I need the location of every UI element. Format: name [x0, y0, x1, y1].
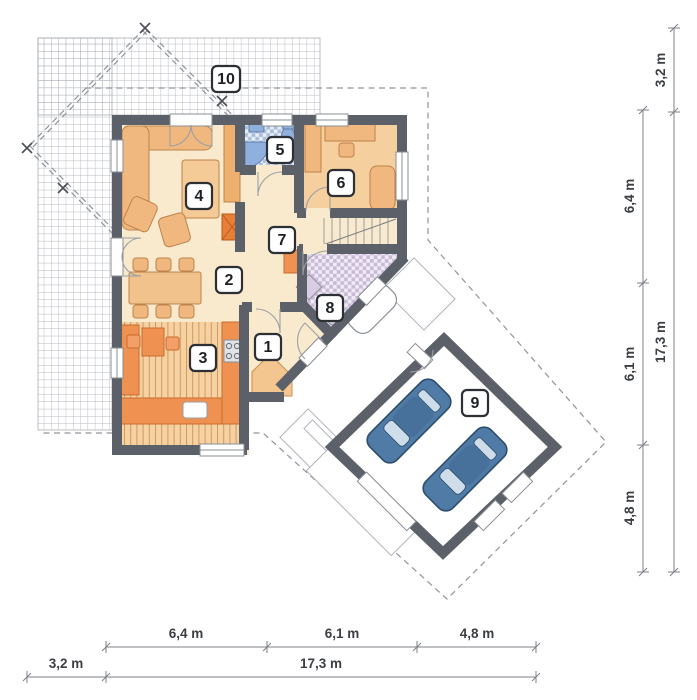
room-label-3: 3 — [190, 345, 216, 371]
kitchen-chair — [166, 337, 179, 350]
svg-text:1: 1 — [264, 339, 273, 356]
dim-bottom-seg-3: 4,8 m — [460, 626, 495, 641]
svg-text:5: 5 — [276, 142, 285, 159]
svg-text:2: 2 — [225, 272, 234, 289]
dimension-lines-bottom — [23, 641, 540, 683]
room-label-2: 2 — [216, 267, 242, 293]
dim-right-seg-3: 4,8 m — [622, 491, 637, 526]
chair — [156, 258, 171, 271]
dim-right-seg-1: 6,4 m — [622, 179, 637, 214]
door-left-terrace — [111, 238, 123, 276]
dining-table — [129, 272, 201, 304]
chair — [179, 305, 194, 318]
dimension-labels-bottom: 6,4 m 6,1 m 4,8 m 3,2 m 17,3 m — [49, 626, 495, 671]
room-label-10: 10 — [212, 66, 240, 92]
room-label-5: 5 — [267, 137, 293, 163]
dim-right-offset: 3,2 m — [653, 53, 668, 88]
dining-set — [129, 258, 201, 318]
room-label-6: 6 — [328, 170, 354, 196]
svg-text:3: 3 — [199, 350, 208, 367]
floor-plan-page: 1 2 3 4 5 6 7 8 9 10 6,4 m 6,1 m 4,8 m 3… — [0, 0, 697, 700]
kitchen-table — [142, 328, 164, 356]
dim-right-seg-2: 6,1 m — [622, 347, 637, 382]
wardrobe — [305, 124, 321, 172]
desk-chair — [339, 143, 354, 157]
kitchen-sink — [183, 402, 207, 418]
svg-text:6: 6 — [337, 175, 346, 192]
dimension-lines-right — [637, 24, 680, 576]
dim-right-total: 17,3 m — [653, 321, 668, 363]
desk — [325, 124, 375, 141]
svg-text:9: 9 — [471, 395, 480, 412]
dim-bottom-seg-1: 6,4 m — [169, 626, 204, 641]
dim-bottom-total: 17,3 m — [300, 656, 342, 671]
kitchen-chair — [127, 335, 140, 348]
room-label-8: 8 — [317, 295, 343, 321]
dim-bottom-seg-2: 6,1 m — [325, 626, 360, 641]
room-label-9: 9 — [462, 390, 488, 416]
sofa — [370, 166, 395, 210]
floor-plan-drawing: 1 2 3 4 5 6 7 8 9 10 6,4 m 6,1 m 4,8 m 3… — [0, 0, 697, 700]
svg-text:8: 8 — [326, 300, 335, 317]
svg-text:10: 10 — [217, 71, 235, 88]
svg-text:4: 4 — [195, 188, 204, 205]
door-top-terrace — [170, 114, 212, 126]
chair — [133, 258, 148, 271]
chair — [156, 305, 171, 318]
chair — [179, 258, 194, 271]
room-label-1: 1 — [255, 334, 281, 360]
room-label-4: 4 — [186, 183, 212, 209]
svg-text:7: 7 — [278, 232, 287, 249]
dim-bottom-offset: 3,2 m — [49, 656, 84, 671]
chair — [133, 305, 148, 318]
dimension-labels-right: 6,4 m 6,1 m 4,8 m 3,2 m 17,3 m — [622, 53, 668, 526]
room-label-7: 7 — [269, 227, 295, 253]
